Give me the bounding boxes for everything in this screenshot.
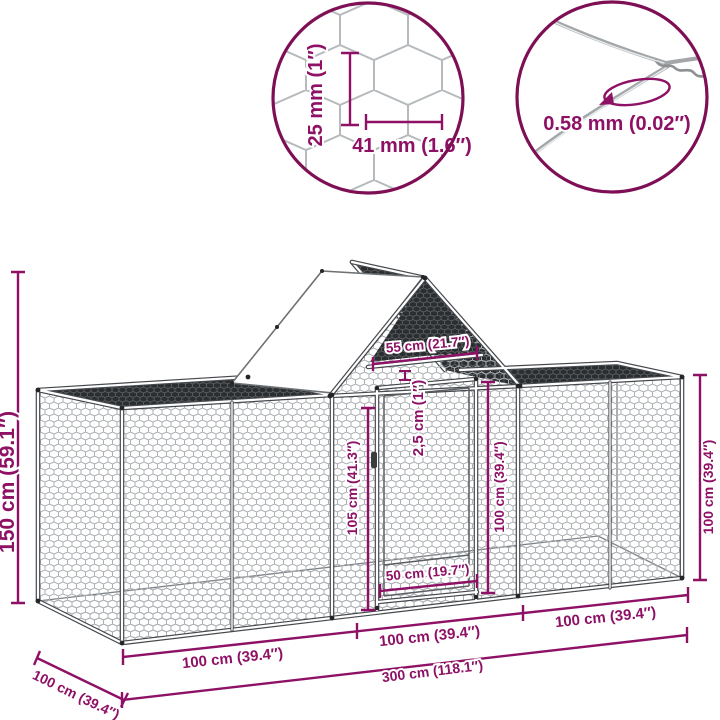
door-handle bbox=[371, 452, 377, 468]
left-front-wall-mesh bbox=[122, 395, 332, 643]
center-wall-height-label: 100 cm (39.4″) bbox=[492, 441, 507, 532]
door-height-label: 105 cm (41.3″) bbox=[344, 441, 360, 536]
right-wall-height-label: 100 cm (39.4″) bbox=[700, 440, 716, 535]
product-dimension-diagram: 25 mm (1″) 41 mm (1.6″) 0.58 mm (0.02″) bbox=[0, 0, 720, 720]
total-height-label: 150 cm (59.1″) bbox=[0, 411, 19, 553]
wire-illustration bbox=[528, 16, 720, 158]
diagram-canvas: 25 mm (1″) 41 mm (1.6″) 0.58 mm (0.02″) bbox=[0, 0, 720, 720]
mesh-height-label: 25 mm (1″) bbox=[305, 44, 327, 147]
wire-thickness-label: 0.58 mm (0.02″) bbox=[543, 113, 690, 135]
tube-size-label: 2,5 cm (1″) bbox=[410, 380, 427, 456]
right-front-wall-mesh bbox=[518, 377, 682, 596]
mesh-detail-circle: 25 mm (1″) 41 mm (1.6″) bbox=[270, 0, 472, 200]
diameter-loop-arrow bbox=[602, 74, 671, 109]
wire-detail-circle: 0.58 mm (0.02″) bbox=[517, 2, 720, 192]
total-length-label: 300 cm (118.1″) bbox=[381, 657, 484, 685]
chicken-run-drawing bbox=[36, 262, 685, 645]
